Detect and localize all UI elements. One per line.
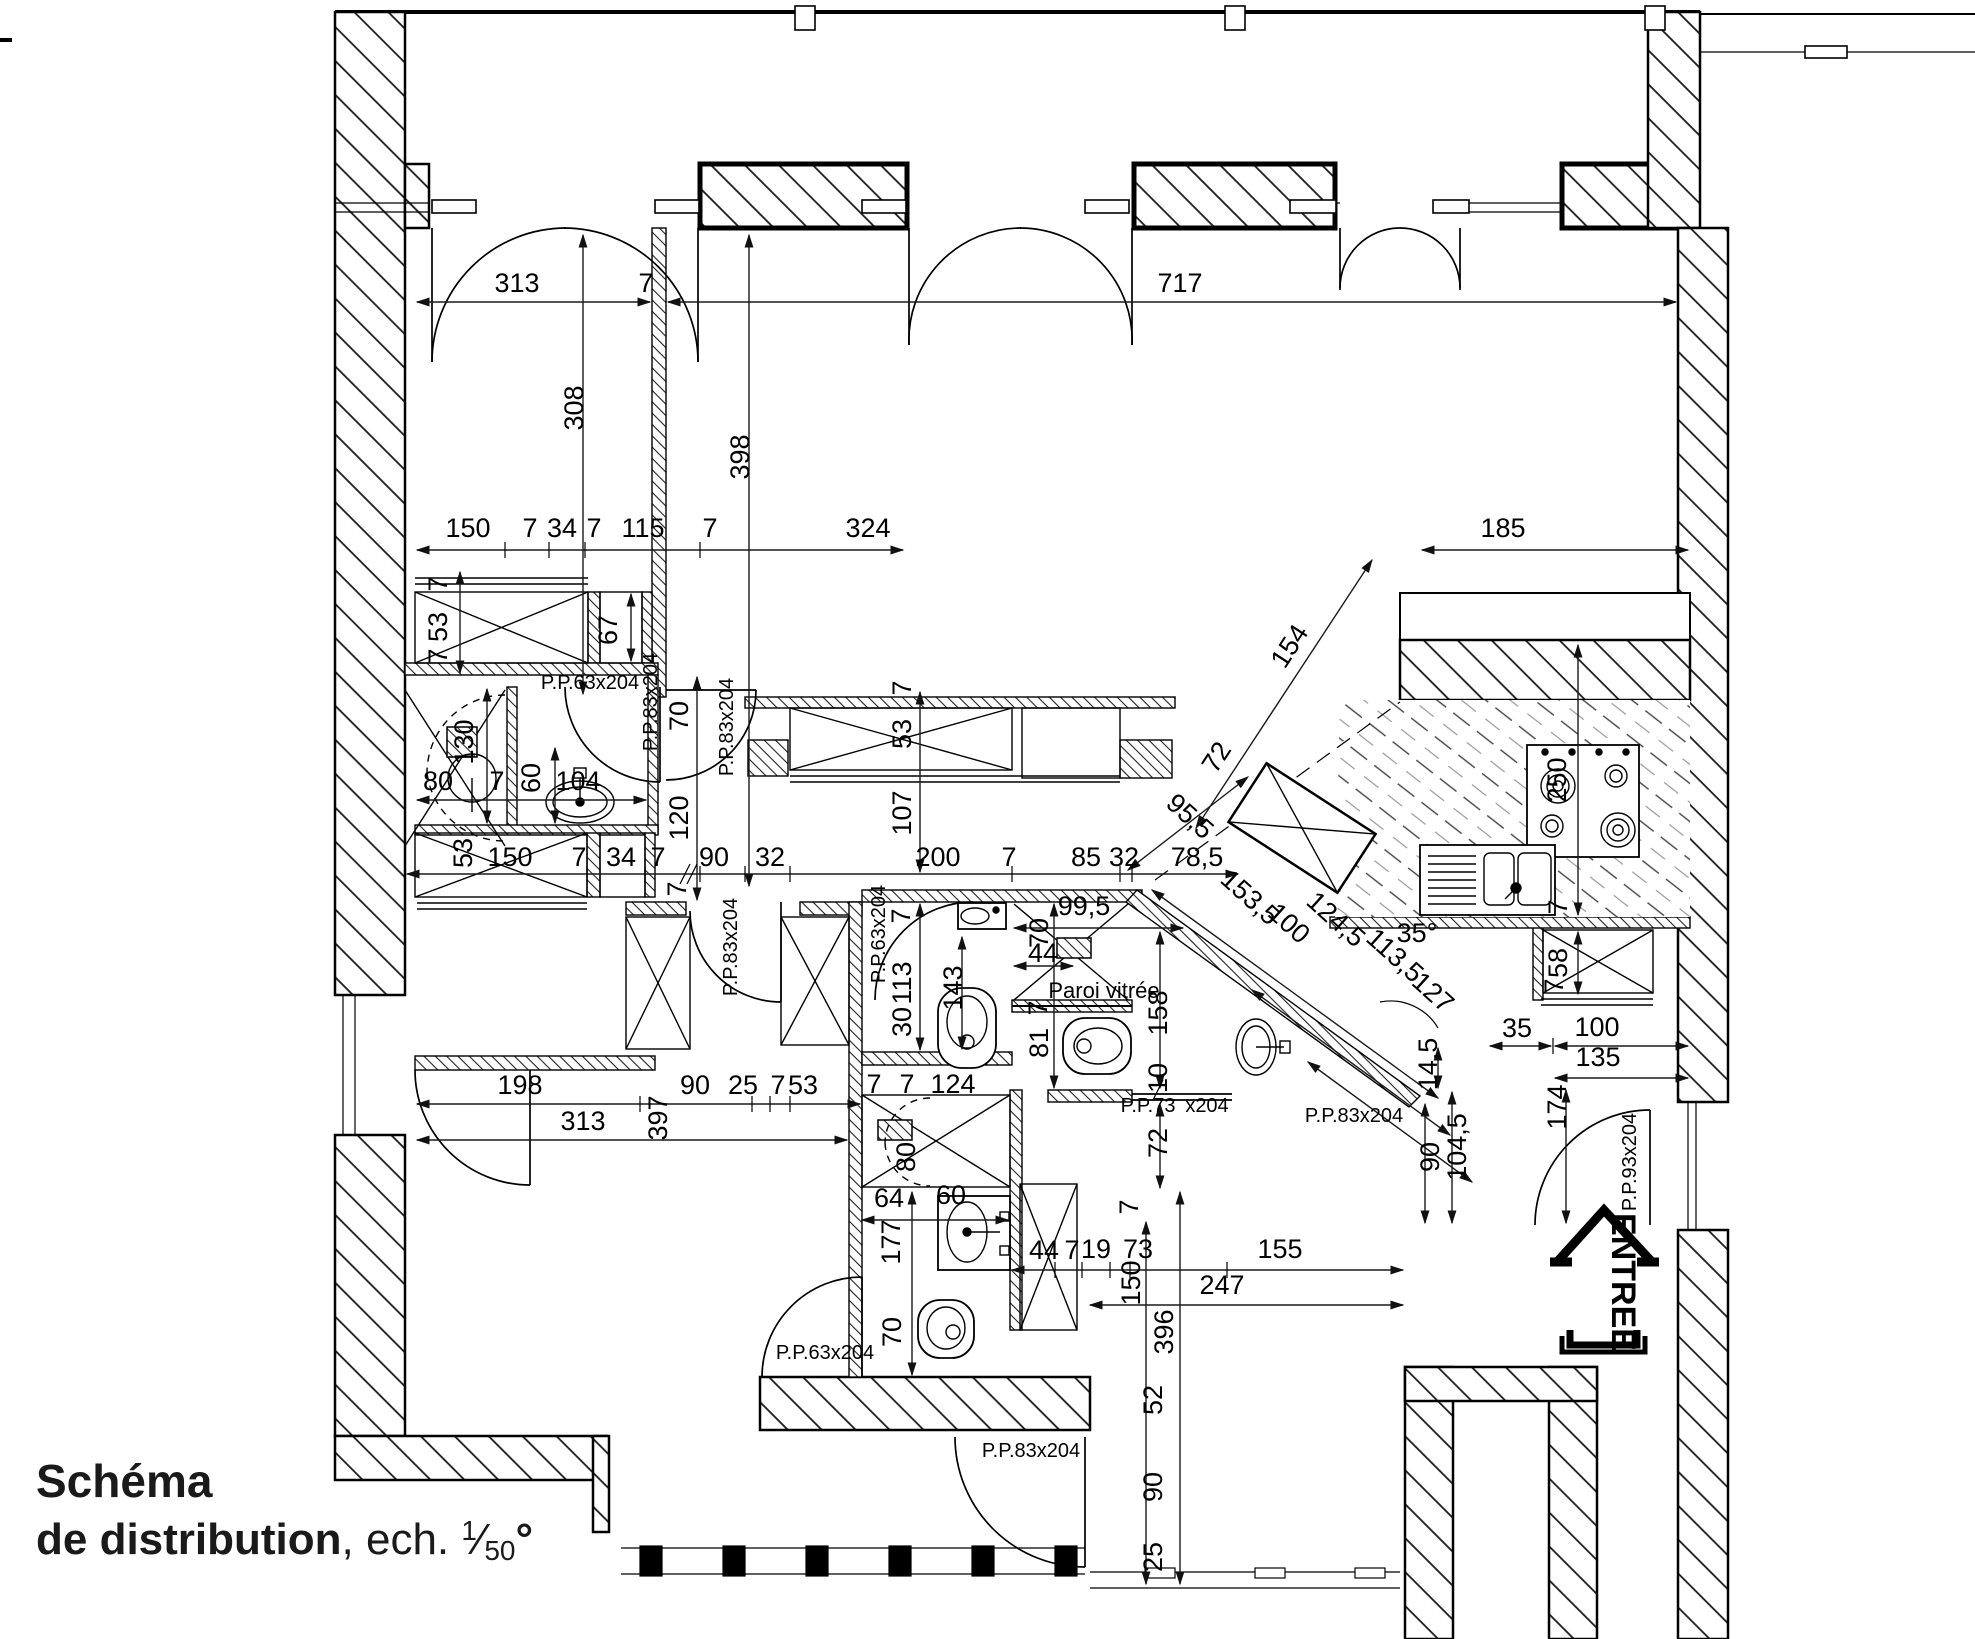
washbasin-entry [1236, 1019, 1290, 1075]
scale-degree: ° [515, 1515, 533, 1564]
dimension-label: 7 [866, 1069, 881, 1099]
dimension-label: 124 [930, 1069, 975, 1099]
door-label: x204 [1185, 1095, 1228, 1117]
bottom-room-wall [760, 1377, 1090, 1430]
dimension-label: 53 [788, 1070, 818, 1100]
stairwell-wall-right [1549, 1367, 1597, 1639]
dimension-label: 247 [1199, 1270, 1244, 1300]
dimension-label: 150 [445, 513, 490, 543]
dimension-label: 72 [1143, 1128, 1173, 1158]
dimension-label: 398 [725, 434, 755, 479]
dimension-label: 104 [555, 766, 600, 796]
closet-tall-left [626, 917, 690, 1049]
dimension-label: 7 [887, 680, 917, 695]
door-label: P.P.83x204 [720, 898, 742, 996]
door-label: P.P.93x204 [1619, 1113, 1641, 1211]
left-exterior-wall-upper [335, 12, 405, 995]
title-line1: Schéma [36, 1448, 533, 1515]
shower-basin-divider [507, 687, 517, 832]
kitchen-counter-hatched [1400, 640, 1690, 700]
dimension-label: 7 [1114, 1199, 1144, 1214]
right-exterior-wall-lower [1678, 1230, 1728, 1639]
stairwell-wall-left [1405, 1367, 1453, 1639]
dimension-label: 313 [494, 268, 539, 298]
dimension-label: 150 [1116, 1260, 1146, 1305]
left-balcony-window [338, 995, 360, 1135]
closet-divider-b [642, 592, 652, 663]
dimension-label: 113 [887, 961, 917, 1004]
dimension-label: 200 [915, 842, 960, 872]
dimension-label: 53 [887, 719, 917, 749]
dimension-label: 250 [1542, 757, 1572, 802]
dimension-label: 34 [606, 842, 636, 872]
dimension-label: 7 [423, 576, 453, 591]
dimension-label: 130 [449, 719, 479, 764]
dimension-label: 44 [1029, 1235, 1059, 1265]
left-wall-pier [405, 164, 429, 228]
dimension-label: 185 [1480, 513, 1525, 543]
dimension-label: 7 [702, 513, 717, 543]
dimension-label: 53 [448, 838, 478, 868]
drawing-title: Schéma de distribution, ech. 1⁄50° [36, 1448, 533, 1567]
dimension-label: 32 [755, 842, 785, 872]
dimension-label: 7 [899, 1069, 914, 1099]
dimension-label: 80 [423, 766, 453, 796]
dimension-label: 174 [1542, 1084, 1572, 1129]
facade-sill-lines [335, 203, 1562, 212]
dimension-label: 135 [1575, 1042, 1620, 1072]
kitchen-upper-counter [1400, 593, 1690, 640]
dimension-label: 10 [1143, 1063, 1173, 1093]
dimension-label: 154 [1265, 619, 1315, 673]
dimension-label: 60 [516, 763, 546, 793]
dimension-label: 14,5 [1413, 1038, 1443, 1091]
french-door-2 [909, 228, 1132, 345]
door-label: P.P.83x204 [1305, 1105, 1403, 1127]
dimension-label: 99,5 [1058, 891, 1111, 921]
dimension-label: 70 [664, 701, 694, 731]
french-door-3 [1340, 228, 1460, 290]
left-exterior-wall-lower [335, 1135, 405, 1436]
dimension-label: 90 [1415, 1142, 1445, 1172]
dimension-label: 308 [559, 385, 589, 430]
dimension-label: 44 [1028, 938, 1058, 968]
bidet [918, 1300, 974, 1358]
dimension-label: 90 [1138, 1472, 1168, 1502]
dimension-label: 155 [1257, 1234, 1302, 1264]
shower-room-bottom-wall [1048, 1090, 1132, 1102]
bedroom-corridor-wall-a [626, 902, 686, 915]
dimension-label: 7 [586, 513, 601, 543]
dimension-label: 35 [1502, 1013, 1532, 1043]
door-label: P.P.63x204 [868, 885, 890, 983]
door-label: P.P.73 [1121, 1095, 1176, 1117]
closet-tall-right [781, 917, 849, 1045]
dimension-label: 100 [1574, 1012, 1619, 1042]
dimension-label: 25 [1138, 1542, 1168, 1572]
bottom-left-wall-stub [593, 1436, 609, 1532]
dimension-label: 67 [593, 615, 623, 645]
bottom-window [1090, 1568, 1400, 1588]
dimension-label: 7 [1543, 899, 1573, 914]
bathroom-block-left-wall [849, 902, 862, 1377]
dimension-label: 7 [1001, 842, 1016, 872]
dimension-label: 177 [876, 1219, 906, 1264]
dimension-label: 95,5 [1160, 788, 1219, 845]
dimension-label: 7 [1064, 1235, 1079, 1265]
living-hall-partition [652, 228, 666, 697]
dimension-label: 30 [887, 1007, 917, 1037]
dimension-label: 81 [1024, 1028, 1054, 1058]
door-label: P.P.83x204 [640, 653, 662, 751]
door-label: P.P.83x204 [716, 678, 738, 776]
dimension-label: 34 [547, 513, 577, 543]
lintel-block-a [700, 164, 907, 228]
dimension-label: 7 [662, 881, 692, 896]
dimension-label: 397 [643, 1095, 673, 1140]
title-line2-rest: , ech. [342, 1515, 462, 1564]
dimension-label: 7 [770, 1070, 785, 1100]
dimension-label: 7 [650, 842, 665, 872]
dimension-label: 7 [886, 908, 916, 923]
loggia-railing [621, 1546, 1085, 1576]
glass-wall-label: Paroi vitrée [1048, 978, 1159, 1003]
door-label: P.P.83x204 [982, 1440, 1080, 1462]
dimension-label: 717 [1157, 268, 1202, 298]
cabinet-pier-right [1120, 740, 1172, 778]
dimension-label: 35° [1397, 918, 1438, 948]
kitchen-sink [1420, 845, 1555, 915]
dimension-label: 7 [571, 842, 586, 872]
dimension-label: 90 [680, 1070, 710, 1100]
dimension-label: 32 [1109, 842, 1139, 872]
dimension-label: 80 [891, 1142, 921, 1172]
door-label: P.P.63x204 [776, 1342, 874, 1364]
closet-row2-divider-a [587, 833, 600, 897]
dimension-label: 85 [1071, 842, 1101, 872]
dimension-label: 53 [423, 612, 453, 642]
door-label: P.P.63x204 [541, 672, 639, 694]
dimension-label: 7 [1539, 978, 1569, 993]
dimension-label: 72 [1196, 736, 1238, 778]
dimension-label: 58 [1543, 948, 1573, 978]
dimension-label: 70 [877, 1317, 907, 1347]
floor-plan-drawing: 3137717308398150734711573241857537677012… [0, 0, 1975, 1639]
dimension-label: 143 [938, 965, 968, 1010]
cabinet-pier-left [748, 740, 788, 776]
corridor-cabinet-back-wall [745, 697, 1175, 708]
dimension-label: 7 [522, 513, 537, 543]
dimension-label: 120 [664, 795, 694, 840]
dimension-label: 25 [728, 1070, 758, 1100]
hand-basin [958, 903, 1006, 929]
dimension-label: 64 [874, 1183, 904, 1213]
dimension-label: 60 [936, 1180, 966, 1210]
dimension-label: 396 [1149, 1309, 1179, 1354]
dimension-label: 7 [423, 648, 453, 663]
toilet-2 [1063, 1018, 1131, 1074]
stairwell-wall-top [1405, 1367, 1597, 1401]
dimension-label: 7 [489, 766, 504, 796]
shower-bottom [862, 1095, 1010, 1187]
dimension-label: 313 [560, 1106, 605, 1136]
dimension-label: 52 [1138, 1385, 1168, 1415]
dimension-label: 78,5 [1171, 842, 1224, 872]
dimension-label: 115 [621, 513, 664, 543]
dimension-label: 104,5 [1442, 1113, 1472, 1181]
corridor-cabinet [790, 708, 1120, 782]
title-line2-bold: de distribution [36, 1515, 342, 1564]
dimension-label: 7 [638, 268, 653, 298]
dimension-label: 73 [1123, 1234, 1153, 1264]
floor-plan-page: 3137717308398150734711573241857537677012… [0, 0, 1975, 1639]
dimension-label: 324 [845, 513, 890, 543]
scale-fraction: 1⁄50 [461, 1515, 515, 1564]
dimension-label: 19 [1081, 1234, 1111, 1264]
dimension-label: 198 [497, 1070, 542, 1100]
title-line2: de distribution, ech. 1⁄50° [36, 1515, 533, 1567]
dimension-label: 107 [887, 790, 917, 835]
top-right-corner-block [1648, 12, 1700, 228]
dimension-label: 150 [487, 842, 532, 872]
entrance-label: ENTREE [1604, 1213, 1642, 1351]
lintel-block-b [1134, 164, 1335, 228]
living-bedroom-wall [415, 1056, 655, 1070]
dimension-label: 90 [699, 842, 729, 872]
